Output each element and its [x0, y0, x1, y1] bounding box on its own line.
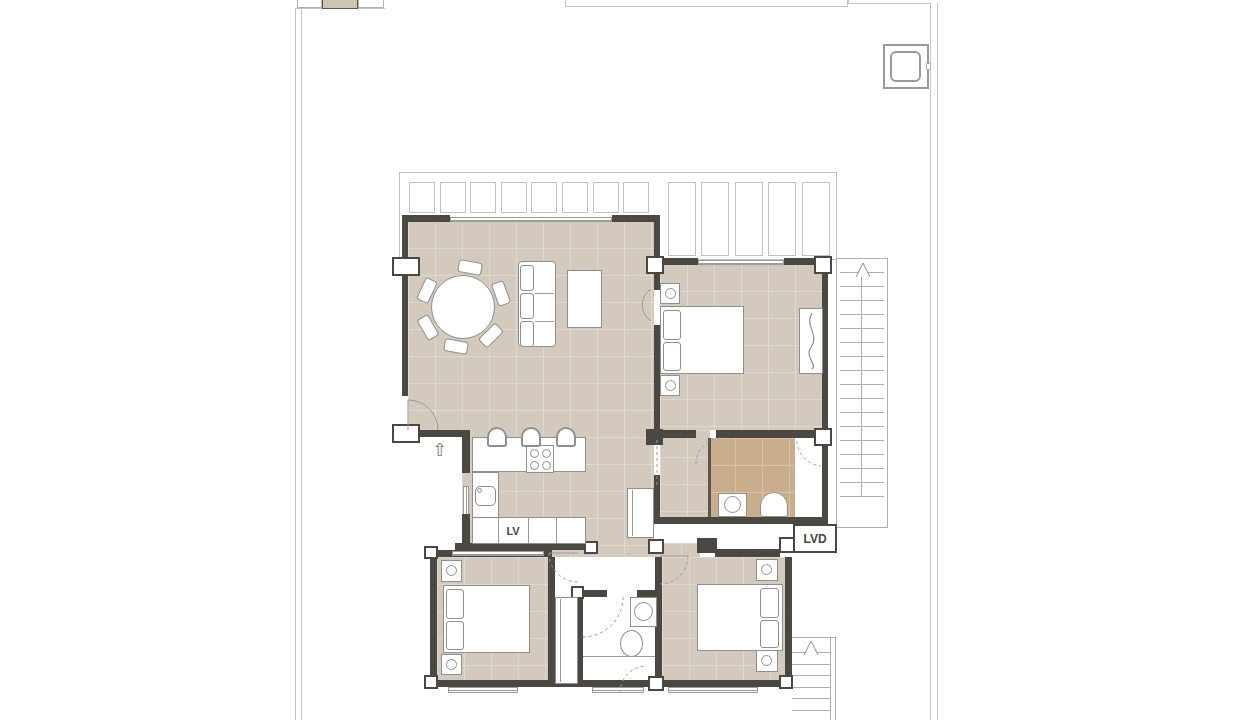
- stair-tread: [840, 342, 884, 343]
- wall-living-top-left: [402, 215, 450, 222]
- bed3-pillow-2: [760, 620, 779, 648]
- stair-tread: [792, 687, 830, 688]
- stair-tread: [792, 675, 830, 676]
- burner-3: [530, 461, 539, 470]
- bathroom1-basin-bowl: [724, 496, 741, 513]
- stair-bottom-edge-outer: [835, 637, 836, 720]
- wall-bedroom3-right: [785, 557, 792, 680]
- boundary-right-inner: [930, 3, 931, 720]
- gate-panel: [322, 0, 358, 9]
- stair-tread: [792, 710, 830, 711]
- boundary-top-right-tick: [848, 0, 849, 4]
- stair-bottom-edge-inner: [830, 637, 831, 720]
- shower-divider: [583, 656, 655, 657]
- wall-bedroom3-top: [715, 549, 780, 557]
- stair-tread: [792, 652, 830, 653]
- wall-bedroom2-left: [430, 557, 437, 687]
- outdoor-unit-basin: [890, 51, 921, 82]
- bathroom2-basin-bowl: [634, 602, 653, 621]
- bed1-pillow-1: [663, 310, 681, 340]
- pergola-slat: [768, 182, 796, 256]
- pergola-slat: [668, 182, 696, 256]
- hall-floor: [660, 430, 710, 517]
- column-bedroom1-topright: [814, 256, 832, 274]
- bed2-lamp-top: [446, 565, 457, 576]
- stair-tread: [840, 300, 884, 301]
- gate-post-left: [297, 0, 322, 8]
- hall-closet-line: [632, 490, 633, 536]
- column-mid-right: [814, 428, 832, 446]
- counter-divider-3: [556, 518, 557, 543]
- bathroom2-toilet: [620, 630, 643, 657]
- burner-1: [530, 449, 539, 458]
- bar-stool-2: [521, 427, 541, 447]
- stair-right-enclosure: [836, 258, 888, 528]
- dishwasher-label: LV: [498, 519, 528, 542]
- bed1-lamp-bottom: [665, 380, 676, 391]
- stair-tread: [792, 698, 830, 699]
- boundary-left-inner: [301, 8, 302, 720]
- bed1-pillow-2: [663, 342, 681, 371]
- pergola-slat: [562, 182, 588, 213]
- entry-arrow-icon: ⇧: [428, 438, 452, 462]
- bedroom1-window: [698, 260, 784, 265]
- sofa-back-cushion-2: [520, 293, 534, 319]
- side-table: [567, 270, 602, 328]
- wall-bottom: [430, 680, 792, 687]
- wall-mid-horizontal-right: [716, 430, 828, 438]
- pergola-slat: [802, 182, 830, 256]
- column-bathroom2-bottom: [648, 676, 664, 691]
- stair-tread: [840, 328, 884, 329]
- bedroom2-closet: [555, 597, 578, 684]
- column-mid-left: [646, 429, 663, 445]
- wall-bedroom2-right: [548, 557, 555, 680]
- stair-tread: [840, 440, 884, 441]
- wall-bathroom1-left: [708, 438, 711, 517]
- wall-kitchen-left-a: [462, 437, 470, 473]
- bedroom1-wardrobe: [799, 308, 823, 374]
- boundary-right-outer: [937, 3, 938, 720]
- column-bedroom2-topleft: [424, 546, 438, 559]
- floor-plan-canvas: LV LVD ⇧: [0, 0, 1240, 720]
- stair-tread: [840, 468, 884, 469]
- stair-tread: [840, 384, 884, 385]
- pergola-slat: [623, 182, 649, 213]
- bedroom2-bottom-window: [448, 687, 518, 693]
- bar-stool-3: [556, 427, 576, 447]
- stair-tread: [840, 272, 884, 273]
- wall-bedroom1-top-left: [660, 258, 698, 265]
- stair-tread: [840, 286, 884, 287]
- pergola-slat: [409, 182, 435, 213]
- boundary-top-right: [848, 3, 930, 4]
- stair-tread: [840, 370, 884, 371]
- burner-4: [542, 461, 551, 470]
- stair-tread: [840, 412, 884, 413]
- bathroom1-toilet: [760, 492, 788, 517]
- stair-tread: [792, 664, 830, 665]
- stair-right-centerline: [861, 272, 862, 497]
- cooktop: [526, 445, 554, 473]
- wall-kitchen-left-b: [462, 514, 470, 545]
- stair-tread: [840, 496, 884, 497]
- bedroom2-closet-line: [560, 599, 561, 682]
- pergola-slat: [593, 182, 619, 213]
- wardrobe-rail-icon: [800, 309, 822, 373]
- bed3-lamp-bottom: [761, 655, 772, 666]
- bed3-lamp-top: [761, 564, 772, 575]
- stair-tread: [840, 482, 884, 483]
- outdoor-unit-tick: [926, 63, 931, 70]
- pergola-slat: [531, 182, 557, 213]
- boundary-left-outer: [295, 8, 296, 720]
- column-living-left-top: [392, 257, 420, 276]
- wall-kitchen-bottom: [455, 543, 595, 550]
- bathroom2-door-arc: [583, 597, 623, 637]
- sofa-seat-line-1: [535, 293, 554, 294]
- column-corridor: [648, 539, 664, 554]
- counter-divider-2: [528, 518, 529, 543]
- stair-tread: [840, 356, 884, 357]
- pergola-slat: [501, 182, 527, 213]
- column-living-bedroom1: [646, 256, 664, 274]
- sliding-glass-door: [450, 217, 612, 222]
- wall-living-right-c: [654, 475, 660, 517]
- pergola-slat: [735, 182, 763, 256]
- bathroom2-bottom-window: [592, 687, 644, 693]
- wall-living-top-right: [612, 215, 660, 222]
- stair-tread: [840, 398, 884, 399]
- sofa-seat-line-2: [535, 321, 554, 322]
- column-bedroom3-bottomright: [779, 675, 793, 689]
- stair-tread: [840, 426, 884, 427]
- kitchen-counter-bottom: [472, 517, 586, 544]
- bedroom3-bottom-window: [668, 687, 758, 693]
- bed1-lamp-top: [665, 288, 676, 299]
- column-bedroom2-bottomleft: [424, 675, 438, 689]
- laundry-label: LVD: [793, 524, 837, 553]
- wall-right-lower: [822, 438, 828, 522]
- pergola-slat: [701, 182, 729, 256]
- stair-tread: [840, 314, 884, 315]
- column-living-left-entry: [392, 424, 420, 443]
- bar-stool-1: [487, 427, 507, 447]
- top-structure-cut: [565, 0, 848, 7]
- dining-table: [431, 275, 495, 339]
- bed3-pillow-1: [760, 588, 779, 618]
- kitchen-window: [463, 486, 469, 516]
- column-bedroom3-door: [697, 538, 717, 553]
- stair-bottom-topline: [790, 637, 835, 638]
- column-kitchen-end: [584, 541, 598, 554]
- bed2-pillow-1: [446, 589, 464, 619]
- sink-faucet: [477, 488, 482, 493]
- stair-tread: [840, 454, 884, 455]
- gate-post-right: [358, 0, 384, 8]
- bed2-pillow-2: [446, 621, 464, 650]
- sofa-back-cushion-1: [520, 265, 534, 291]
- pergola-slat: [470, 182, 496, 213]
- bedroom2-top-window: [452, 551, 544, 556]
- pergola-slat: [440, 182, 466, 213]
- wall-living-left: [402, 222, 408, 396]
- bed2-lamp-bottom: [446, 659, 457, 670]
- burner-2: [542, 449, 551, 458]
- sofa-back-cushion-3: [520, 321, 534, 347]
- wall-bathroom1-bottom: [654, 517, 828, 524]
